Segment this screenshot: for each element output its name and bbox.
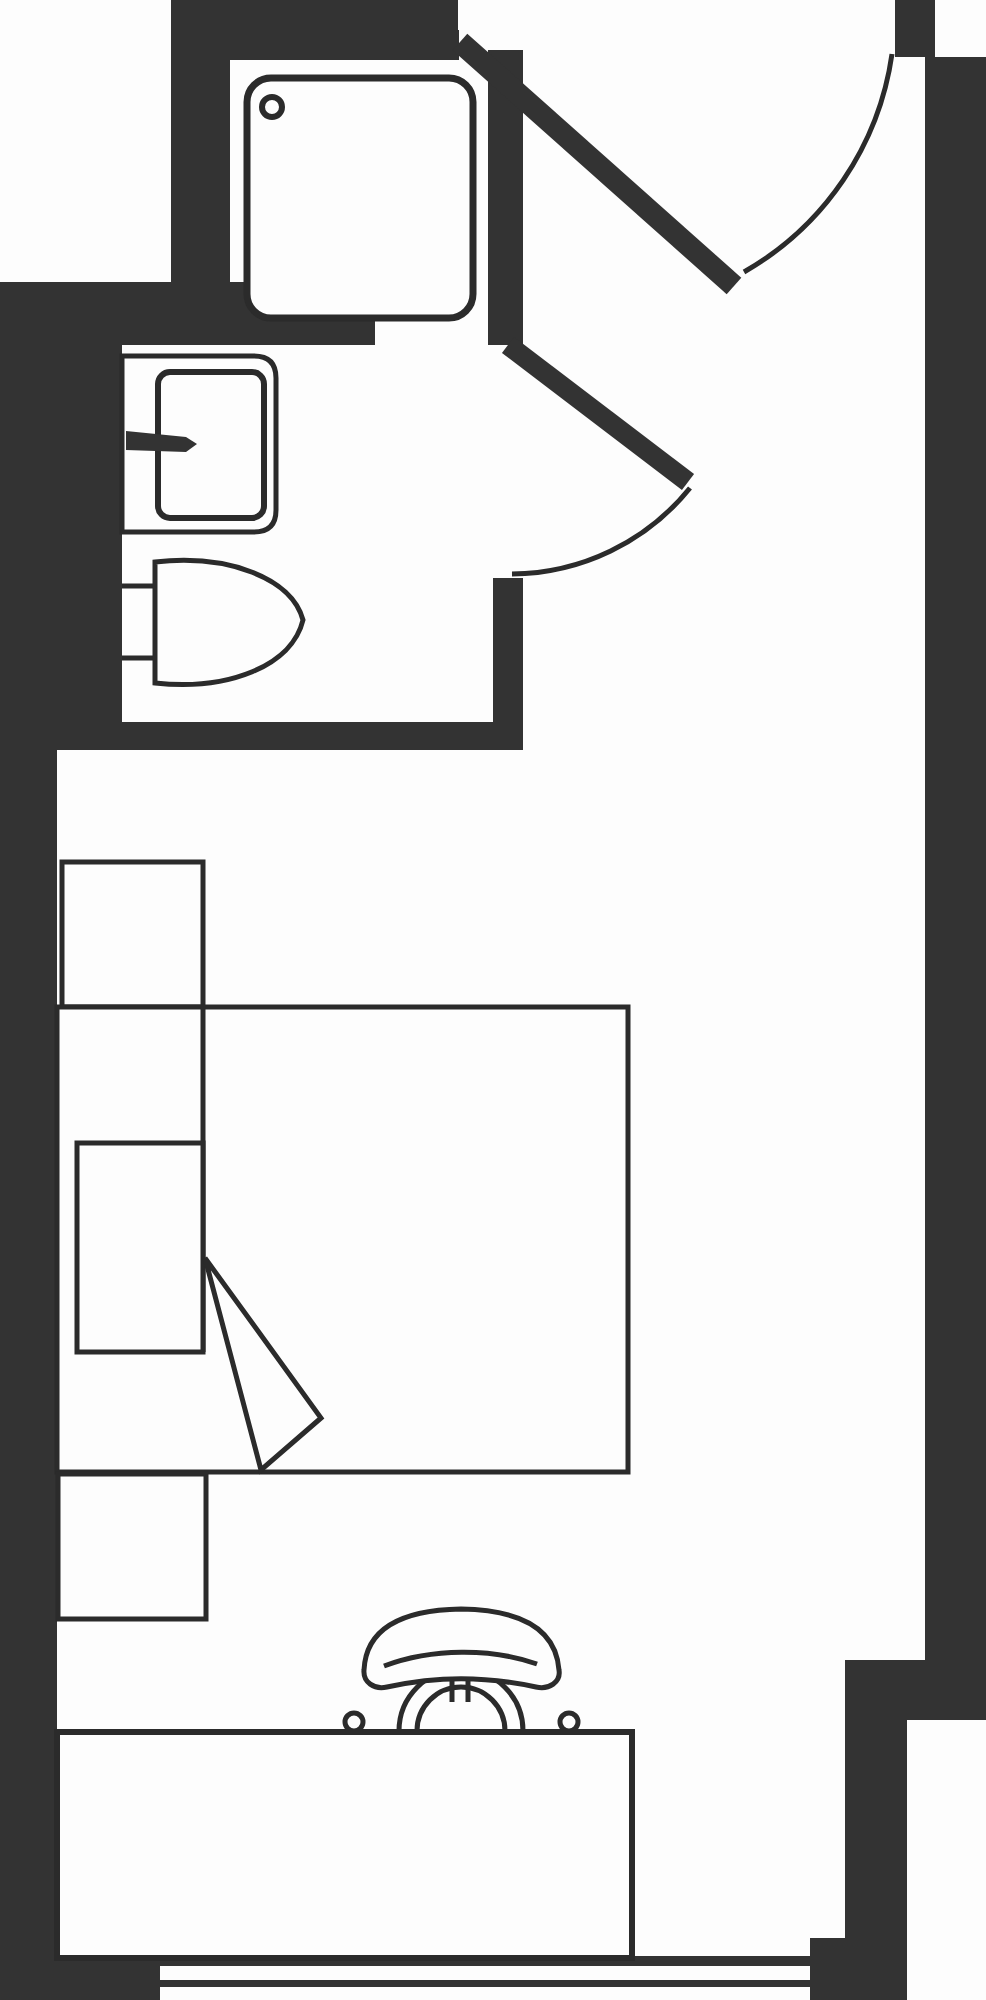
entry-door-swing-arc [744, 54, 892, 272]
left-wall-bedroom [0, 722, 57, 2000]
chair-armrest-left [345, 1713, 363, 1731]
bathroom-door-swing-arc [512, 488, 690, 574]
left-wall-bathroom [0, 282, 122, 750]
toilet [155, 560, 303, 684]
right-wall-step [845, 1660, 986, 1720]
chair [345, 1609, 578, 1731]
bathroom-right-wall [493, 578, 523, 750]
chair-backrest [364, 1609, 559, 1688]
desk [57, 1732, 632, 1958]
shower-left-wall [171, 0, 230, 290]
headboard-cabinet [62, 862, 203, 1007]
floor-plan [0, 0, 986, 2000]
bottom-right-corner-block [810, 1938, 907, 2000]
right-wall-upper [925, 57, 986, 1660]
shower-drain-icon [262, 97, 282, 117]
window-line-inner [160, 1980, 812, 1987]
bathroom-door-leaf [508, 345, 688, 482]
entry-hinge-jamb [443, 30, 459, 60]
chair-armrest-right [560, 1713, 578, 1731]
bedside-cabinet [58, 1474, 206, 1619]
chair-seat-inner [417, 1687, 505, 1731]
floor-plan-drawing [0, 0, 986, 2000]
pillow [77, 1143, 203, 1352]
doors [460, 42, 892, 574]
bedroom-furniture [57, 862, 632, 1958]
entry-strike-jamb [895, 0, 935, 57]
bathroom-bottom-wall [0, 722, 523, 750]
